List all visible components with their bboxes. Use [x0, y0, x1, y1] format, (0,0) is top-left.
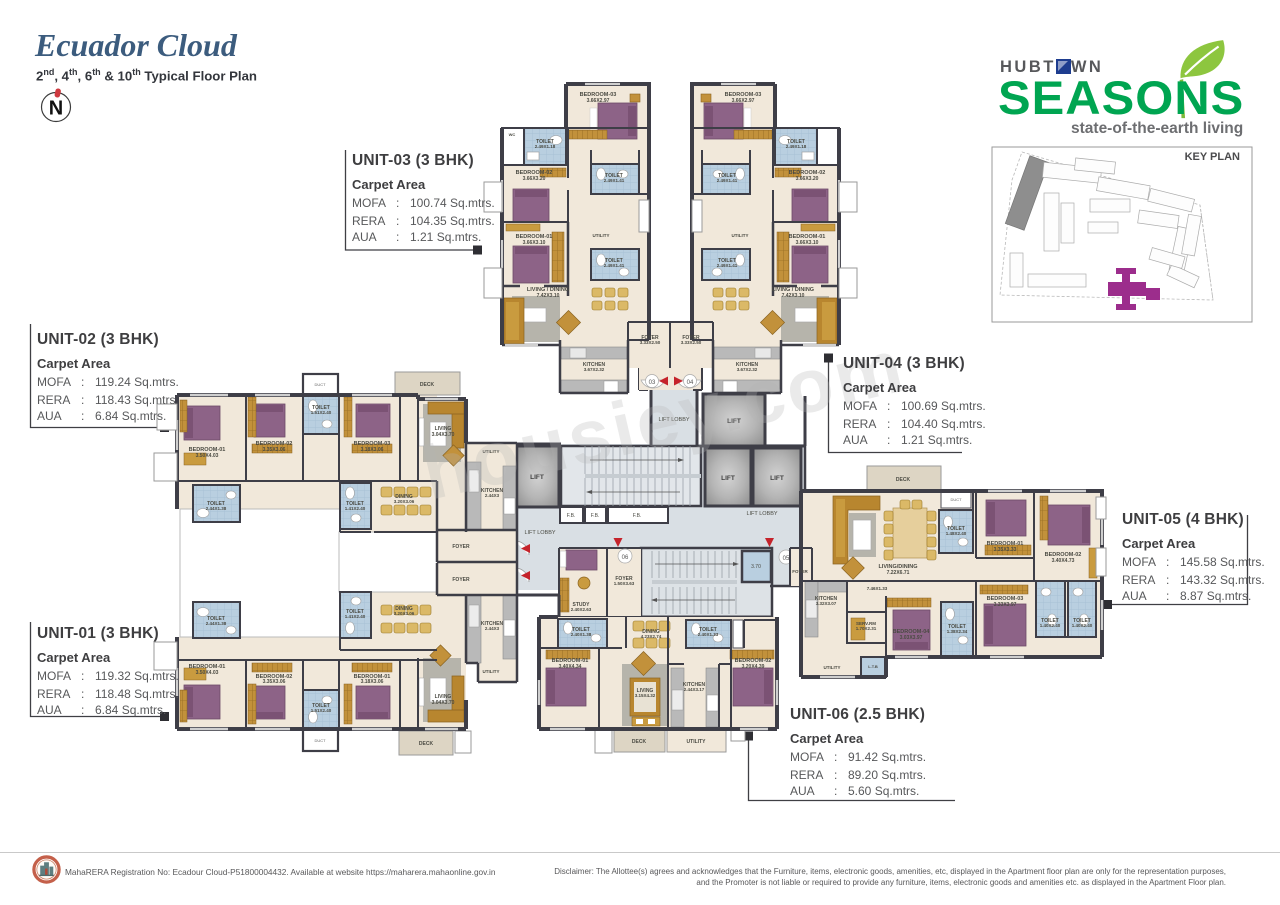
svg-text:DECK: DECK: [419, 741, 434, 747]
svg-text:UTILITY: UTILITY: [824, 665, 841, 670]
svg-text:3.50X4.03: 3.50X4.03: [196, 670, 219, 676]
svg-text:UTILITY: UTILITY: [483, 669, 500, 674]
svg-text:2.44X3.17: 2.44X3.17: [684, 687, 705, 692]
svg-text:F.B.: F.B.: [633, 513, 642, 519]
svg-text:3.66X3.10: 3.66X3.10: [796, 240, 819, 246]
svg-text:1.41X2.40: 1.41X2.40: [345, 614, 366, 619]
svg-text:2.49X1.18: 2.49X1.18: [535, 144, 556, 149]
svg-text:3.35X3.06: 3.35X3.06: [263, 679, 286, 685]
svg-text:2.40X1.38: 2.40X1.38: [571, 632, 592, 637]
svg-text:3.18X3.06: 3.18X3.06: [361, 679, 384, 685]
svg-text:1.48X2.40: 1.48X2.40: [946, 531, 967, 536]
svg-text:1.41X2.40: 1.41X2.40: [345, 506, 366, 511]
svg-text:1.70X2.31: 1.70X2.31: [856, 626, 877, 631]
svg-text:2.44X1.38: 2.44X1.38: [206, 506, 227, 511]
svg-text:3.40X4.34: 3.40X4.34: [559, 664, 582, 670]
svg-text:05: 05: [783, 556, 790, 562]
svg-text:3.35X3.06: 3.35X3.06: [263, 447, 286, 453]
svg-text:1.51X2.40: 1.51X2.40: [311, 410, 332, 415]
svg-text:F.B.: F.B.: [567, 513, 576, 519]
svg-text:LIFT: LIFT: [721, 475, 735, 482]
svg-text:2.49X1.41: 2.49X1.41: [717, 263, 738, 268]
svg-text:1.40X2.40: 1.40X2.40: [1072, 623, 1093, 628]
svg-text:LIFT LOBBY: LIFT LOBBY: [746, 511, 777, 517]
svg-text:7.46X1.33: 7.46X1.33: [867, 586, 888, 591]
svg-text:DUCT: DUCT: [314, 382, 326, 387]
svg-text:1.38X2.34: 1.38X2.34: [947, 629, 968, 634]
svg-text:F.B.: F.B.: [591, 513, 600, 519]
svg-text:06: 06: [622, 555, 629, 561]
svg-text:FOYER: FOYER: [452, 544, 470, 550]
svg-text:3.33X2.50: 3.33X2.50: [640, 340, 661, 345]
svg-text:LIFT: LIFT: [770, 475, 784, 482]
svg-text:UTILITY: UTILITY: [687, 739, 707, 745]
svg-text:3.20X3.06: 3.20X3.06: [394, 499, 415, 504]
svg-text:WC: WC: [509, 132, 516, 137]
svg-text:L.T.B: L.T.B: [868, 664, 878, 669]
svg-text:3.66X3.20: 3.66X3.20: [796, 176, 819, 182]
svg-text:3.20X3.06: 3.20X3.06: [394, 611, 415, 616]
svg-text:3.66X2.97: 3.66X2.97: [587, 98, 610, 104]
svg-text:2.49X1.41: 2.49X1.41: [717, 178, 738, 183]
svg-text:2.40X2.63: 2.40X2.63: [571, 607, 592, 612]
svg-text:3.66X3.20: 3.66X3.20: [523, 176, 546, 182]
svg-text:DECK: DECK: [632, 739, 647, 745]
svg-text:7.42X3.10: 7.42X3.10: [537, 293, 560, 299]
svg-text:UTILITY: UTILITY: [732, 233, 749, 238]
svg-text:3.66X3.10: 3.66X3.10: [523, 240, 546, 246]
svg-text:3.33X3.97: 3.33X3.97: [994, 602, 1017, 608]
svg-text:1.40X2.40: 1.40X2.40: [1040, 623, 1061, 628]
svg-text:2.49X1.41: 2.49X1.41: [604, 263, 625, 268]
svg-text:3.04X3.70: 3.04X3.70: [432, 700, 455, 706]
svg-text:3.66X2.97: 3.66X2.97: [732, 98, 755, 104]
svg-text:2.40X1.33: 2.40X1.33: [698, 632, 719, 637]
svg-text:DUCT: DUCT: [314, 738, 326, 743]
svg-text:3.67X2.32: 3.67X2.32: [584, 367, 605, 372]
svg-text:DECK: DECK: [896, 477, 911, 483]
svg-text:3.18X3.06: 3.18X3.06: [361, 447, 384, 453]
svg-text:2.44X1.38: 2.44X1.38: [206, 621, 227, 626]
svg-text:3.32X3.07: 3.32X3.07: [816, 601, 837, 606]
svg-text:UTILITY: UTILITY: [593, 233, 610, 238]
svg-text:3.70: 3.70: [751, 564, 761, 570]
svg-text:3.15X4.32: 3.15X4.32: [635, 693, 656, 698]
svg-text:3.20X4.39: 3.20X4.39: [742, 664, 765, 670]
svg-text:3.50X4.03: 3.50X4.03: [196, 453, 219, 459]
svg-text:DUCT: DUCT: [950, 497, 962, 502]
svg-text:2.44X3: 2.44X3: [485, 626, 500, 631]
svg-text:FOYER: FOYER: [452, 577, 470, 583]
svg-text:2.49X1.18: 2.49X1.18: [786, 144, 807, 149]
svg-text:7.42X3.10: 7.42X3.10: [782, 293, 805, 299]
svg-text:3.33X2.50: 3.33X2.50: [681, 340, 702, 345]
svg-text:FOYER: FOYER: [792, 569, 808, 574]
svg-text:4.23X2.74: 4.23X2.74: [641, 634, 662, 639]
svg-text:3.03X3.97: 3.03X3.97: [900, 635, 923, 641]
svg-text:1.51X2.40: 1.51X2.40: [311, 708, 332, 713]
svg-text:7.22X6.71: 7.22X6.71: [887, 570, 910, 576]
svg-text:1.50X3.63: 1.50X3.63: [614, 581, 635, 586]
svg-text:2.49X1.41: 2.49X1.41: [604, 178, 625, 183]
svg-text:3.35X3.33: 3.35X3.33: [994, 547, 1017, 553]
svg-text:DECK: DECK: [420, 382, 435, 388]
svg-text:LIFT LOBBY: LIFT LOBBY: [524, 530, 555, 536]
svg-text:KEY PLAN: KEY PLAN: [1185, 151, 1240, 163]
svg-text:3.40X4.73: 3.40X4.73: [1052, 558, 1075, 564]
